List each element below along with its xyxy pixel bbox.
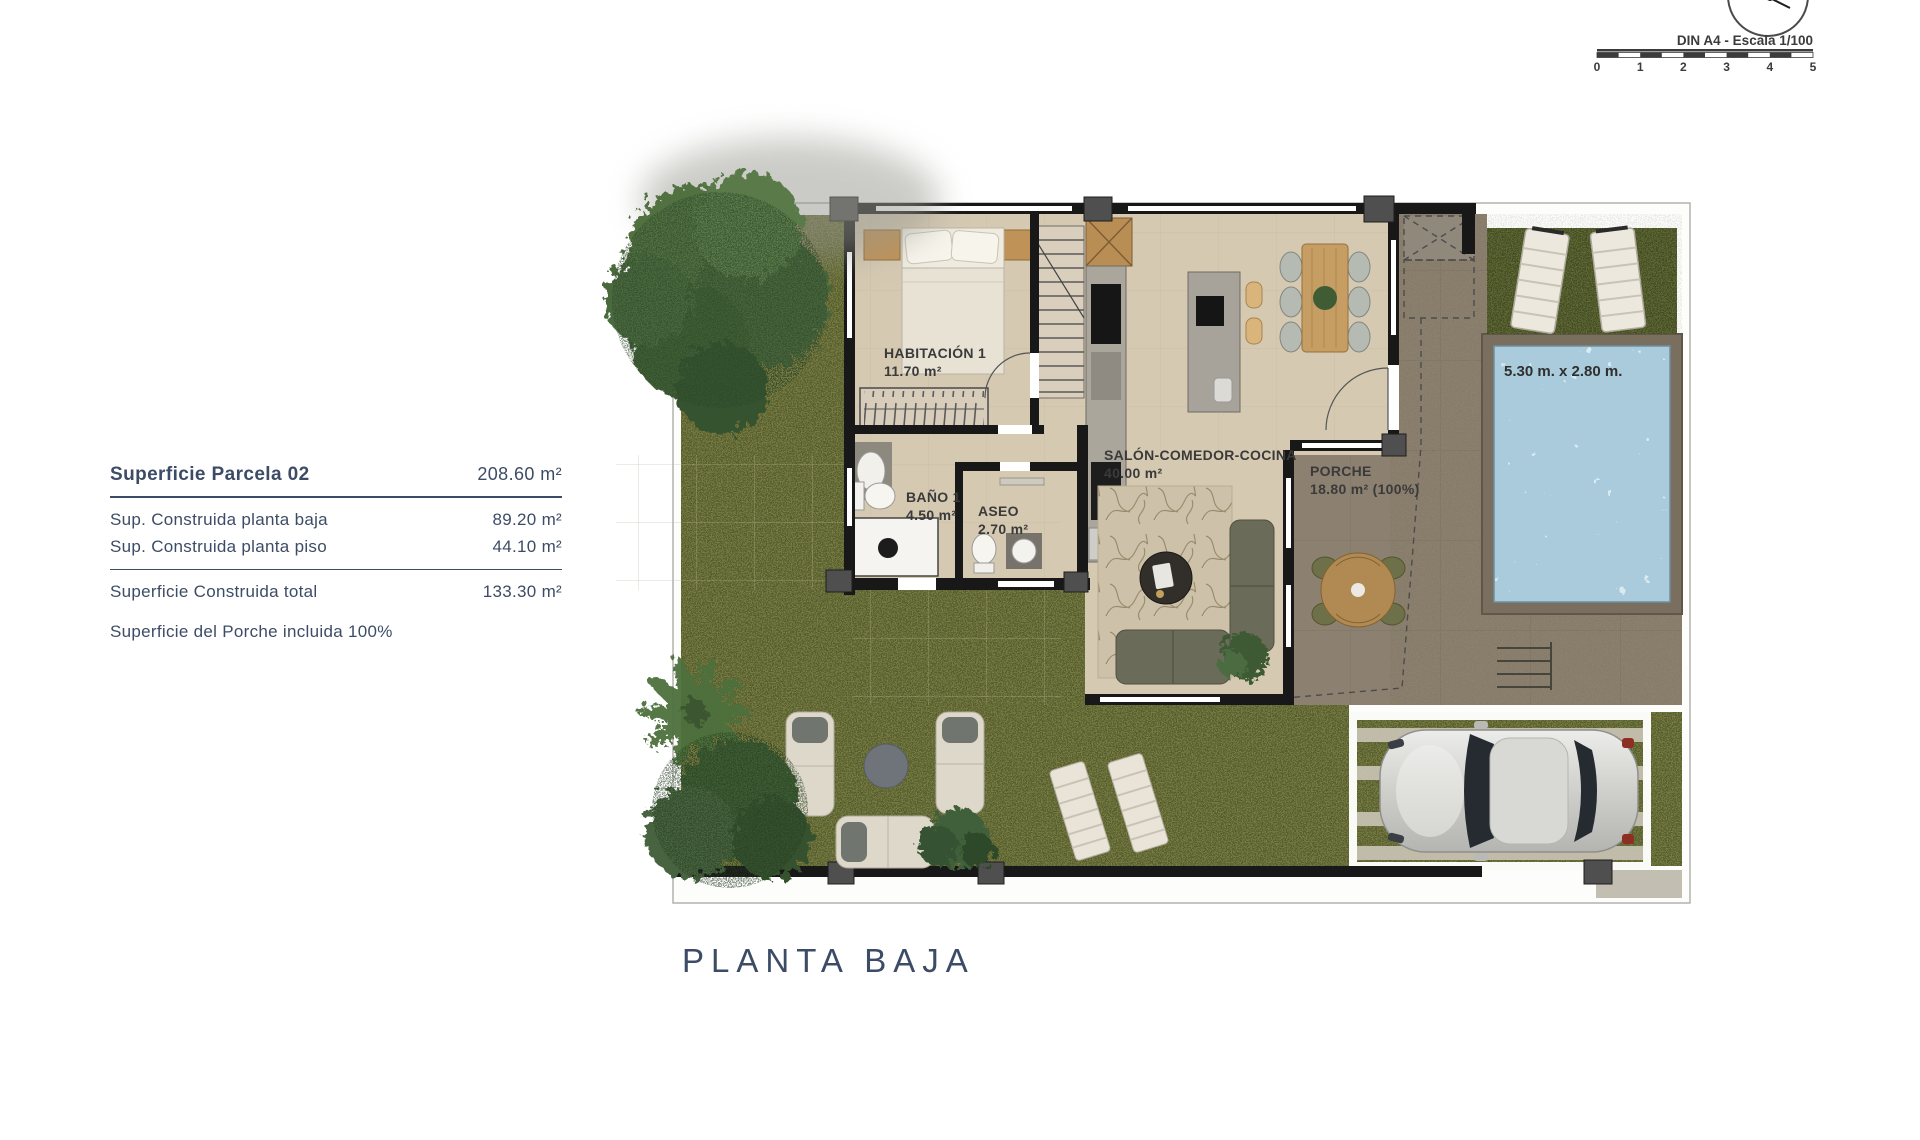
row-label: Sup. Construida planta baja — [110, 510, 328, 530]
room-label-bano: BAÑO 1 — [906, 488, 961, 505]
towel-bar — [1000, 478, 1044, 485]
room-area-salon: 40.00 m² — [1104, 465, 1162, 481]
scale-tick: 4 — [1766, 60, 1773, 74]
washbasin-icon — [1012, 539, 1036, 563]
taillight-icon — [1622, 738, 1634, 748]
stool-icon — [1246, 318, 1262, 344]
surface-row: Sup. Construida planta piso 44.10 m² — [110, 537, 562, 557]
room-label-habitacion: HABITACIÓN 1 — [884, 344, 986, 361]
scale-tick: 0 — [1594, 60, 1601, 74]
pool-dimensions-label: 5.30 m. x 2.80 m. — [1504, 363, 1622, 380]
surface-row: Sup. Construida planta baja 89.20 m² — [110, 510, 562, 530]
kitchen-island — [1188, 272, 1240, 412]
toilet-icon — [865, 483, 895, 509]
scale-tick: 3 — [1723, 60, 1730, 74]
stair-landing — [1086, 218, 1132, 266]
divider — [110, 496, 562, 498]
divider — [110, 569, 562, 570]
surface-total-row: Superficie Construida total 133.30 m² — [110, 582, 562, 602]
parcel-title-label: Superficie Parcela 02 — [110, 464, 310, 486]
sink-icon — [1214, 378, 1232, 402]
page: HABITACIÓN 1 11.70 m² BAÑO 1 4.50 m² ASE… — [0, 0, 1920, 1140]
scale-label: DIN A4 - Escala 1/100 — [1677, 33, 1813, 48]
room-area-bano: 4.50 m² — [906, 507, 956, 523]
porch-note: Superficie del Porche incluida 100% — [110, 622, 562, 642]
parcel-title-value: 208.60 m² — [477, 464, 562, 485]
room-area-aseo: 2.70 m² — [978, 521, 1028, 537]
shower-drain-icon — [878, 538, 898, 558]
side-mirror — [1474, 853, 1488, 861]
wardrobe-icon — [860, 388, 988, 430]
scale-tick: 2 — [1680, 60, 1687, 74]
room-area-habitacion: 11.70 m² — [884, 363, 942, 379]
table-plant-icon — [1313, 286, 1337, 310]
room-area-porche: 18.80 m² (100%) — [1310, 481, 1420, 497]
scale-tick: 1 — [1637, 60, 1644, 74]
cooktop-icon — [1196, 296, 1224, 326]
plan-title: PLANTA BAJA — [682, 942, 975, 980]
row-value: 89.20 m² — [493, 510, 563, 530]
scale-bar: DIN A4 - Escala 1/100 0 1 2 3 4 5 — [1594, 33, 1817, 74]
taillight-icon — [1622, 834, 1634, 844]
stool-icon — [1246, 282, 1262, 308]
tree-texture — [612, 192, 828, 408]
scale-tick: 5 — [1810, 60, 1817, 74]
total-value: 133.30 m² — [483, 582, 562, 602]
compass-icon — [1728, 0, 1808, 36]
room-label-porche: PORCHE — [1310, 463, 1372, 479]
pool-lounger-patch — [1487, 225, 1677, 334]
oven-icon — [1091, 284, 1121, 344]
row-label: Sup. Construida planta piso — [110, 537, 327, 557]
room-label-aseo: ASEO — [978, 503, 1019, 519]
side-mirror — [1474, 721, 1488, 729]
surface-info-panel: Superficie Parcela 02 208.60 m² Sup. Con… — [110, 464, 562, 642]
round-table-icon — [864, 744, 908, 788]
porch-dining-set — [1312, 553, 1405, 627]
room-label-salon: SALÓN-COMEDOR-COCINA — [1104, 446, 1297, 463]
row-value: 44.10 m² — [493, 537, 563, 557]
dining-table — [1280, 244, 1370, 352]
total-label: Superficie Construida total — [110, 582, 318, 602]
car-roof — [1490, 738, 1568, 844]
toilet-icon — [972, 534, 996, 564]
car — [1380, 721, 1638, 861]
